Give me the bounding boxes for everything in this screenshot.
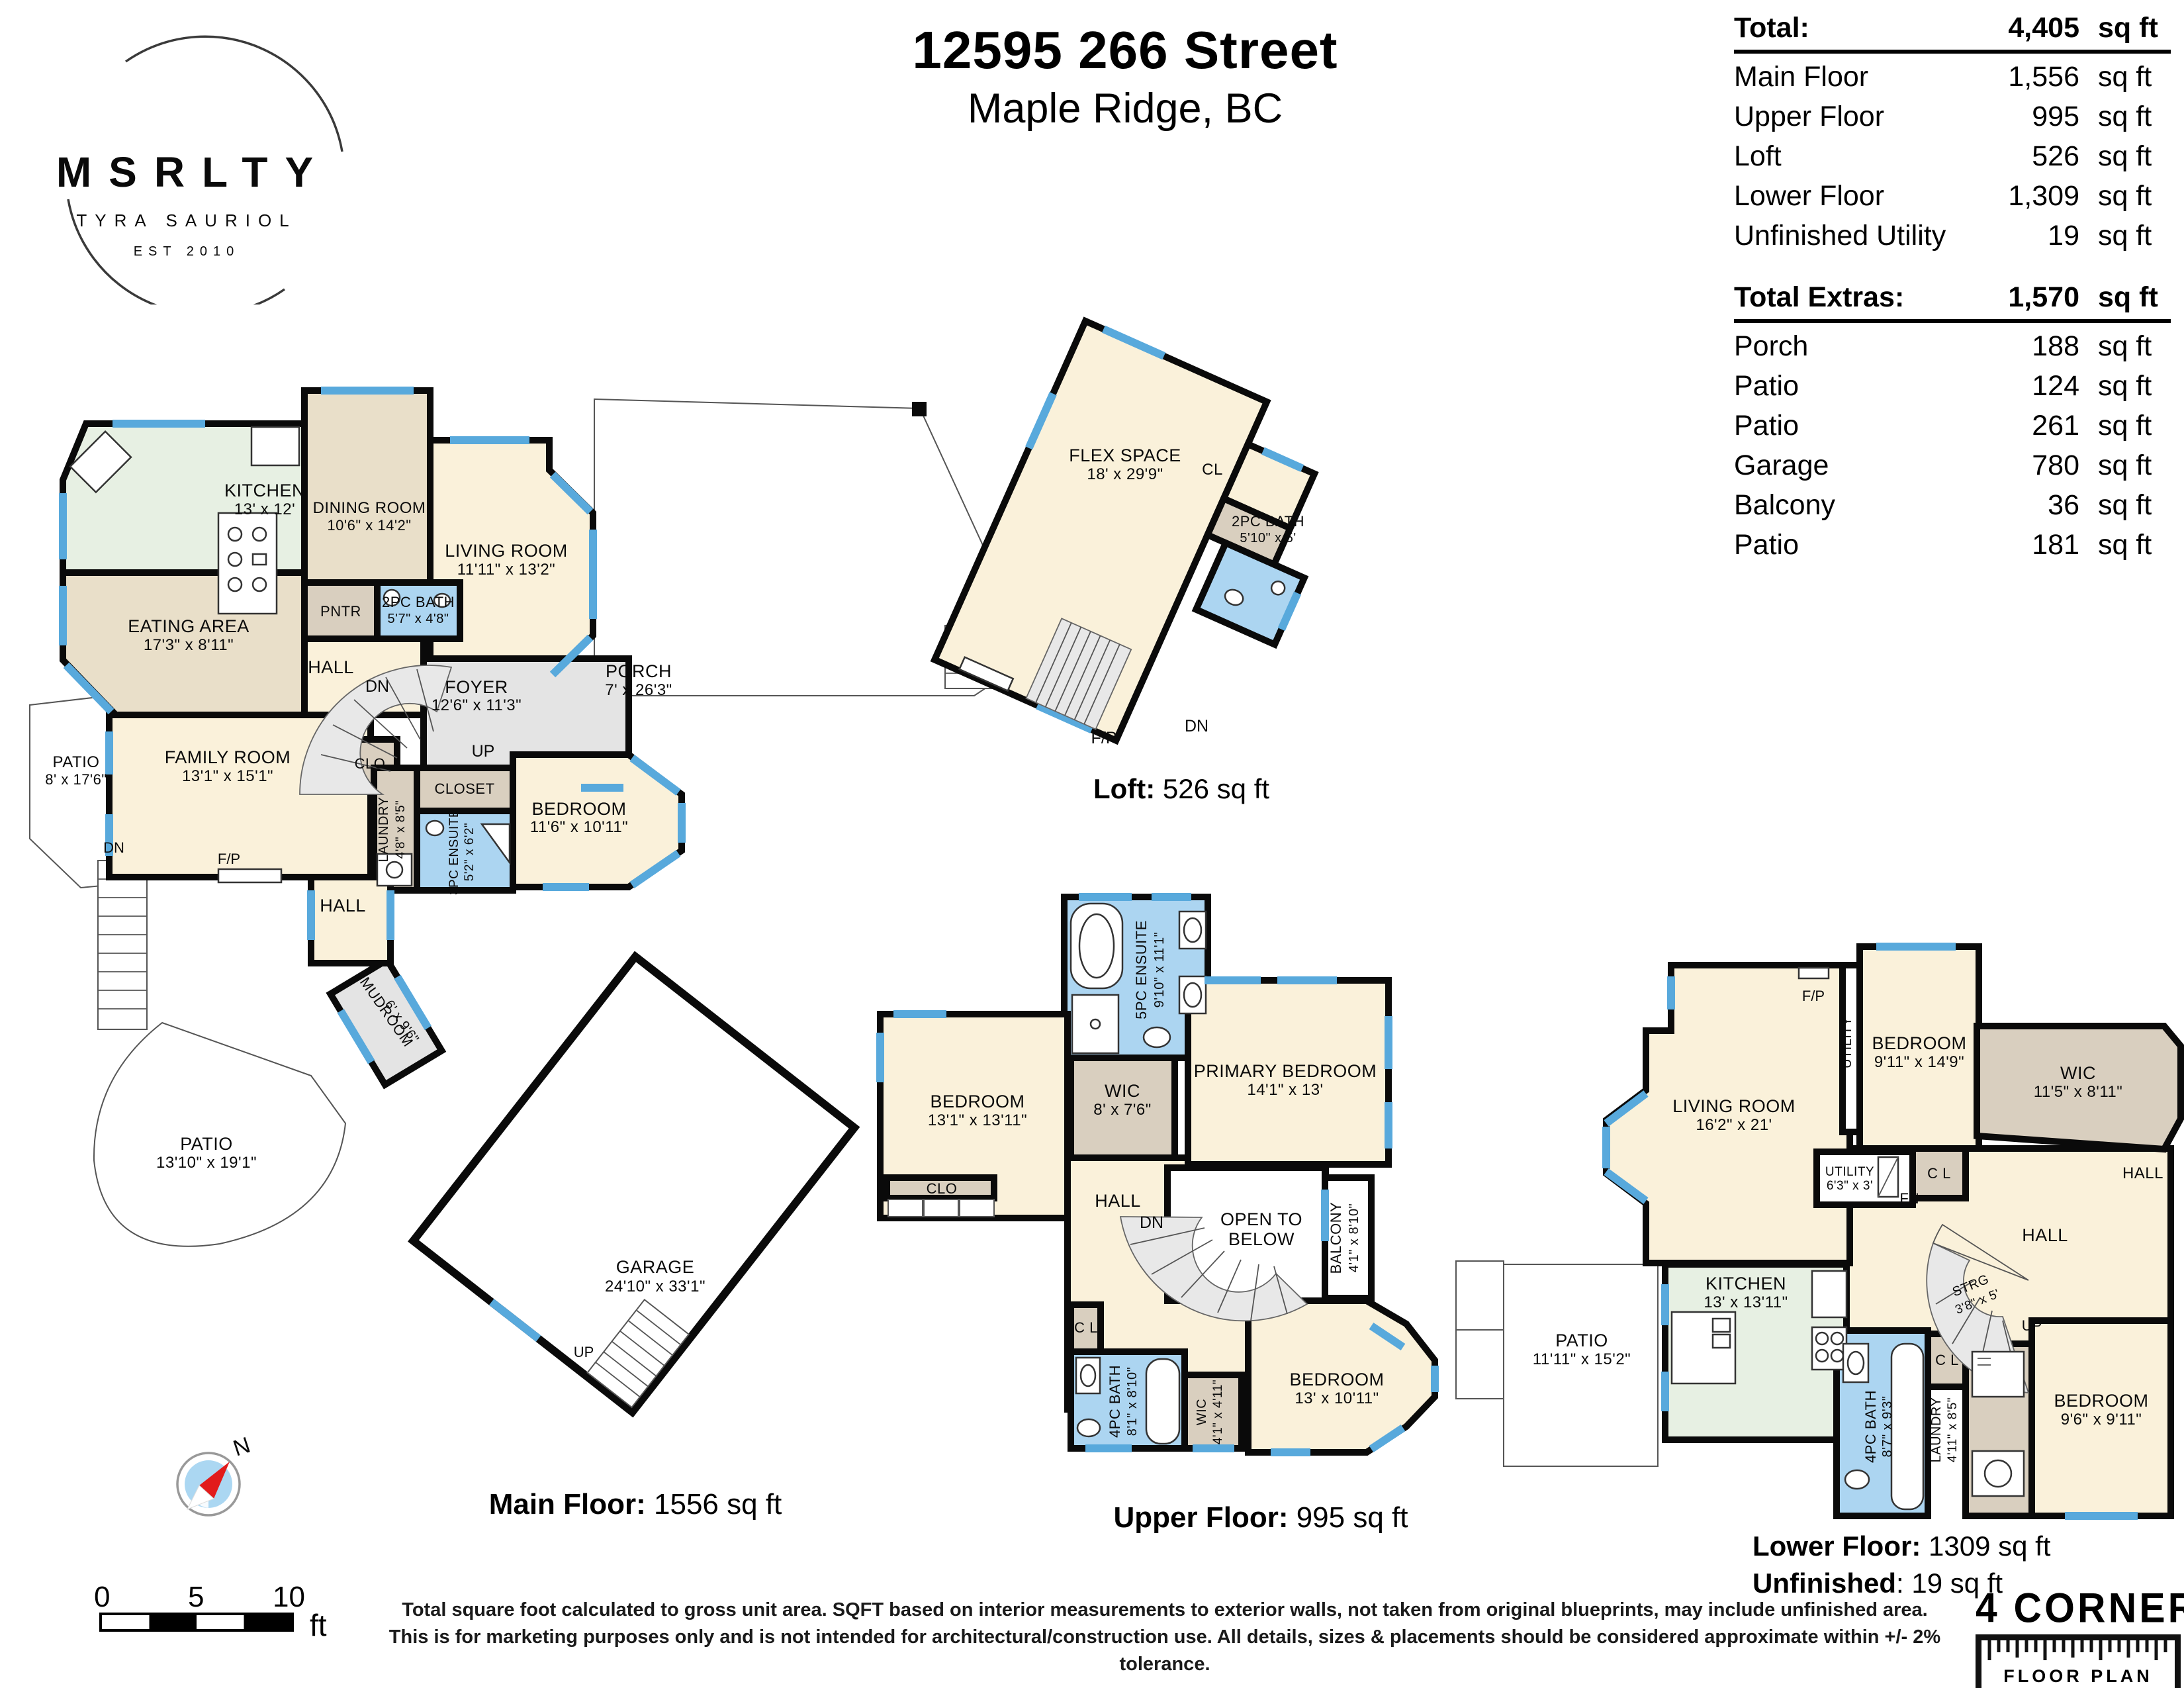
room-dims: 16'2" x 21' — [1696, 1116, 1772, 1134]
room-dims: 13' x 10'11" — [1295, 1389, 1379, 1407]
family-fireplace — [218, 869, 281, 882]
room-label: PATIO — [180, 1134, 233, 1154]
loft-bath-2pc — [1196, 543, 1304, 644]
scale-unit: ft — [310, 1607, 327, 1643]
row-label: Unfinished Utility — [1734, 220, 1980, 252]
room-dims: 6'3" x 3' — [1827, 1179, 1873, 1193]
room-label: BEDROOM — [1289, 1370, 1384, 1389]
logo-est: EST 2010 — [134, 244, 240, 259]
extras-table: Total Extras: 1,570 sq ft Porch188sq ft … — [1734, 281, 2171, 561]
room-label: WIC — [1105, 1081, 1140, 1101]
room-label: UTILITY — [1840, 1017, 1854, 1068]
room-label: LAUNDRY — [377, 797, 391, 863]
room-dims: 8' x 7'6" — [1093, 1101, 1152, 1119]
row-label: Patio — [1734, 410, 1980, 442]
room-label: PNTR — [320, 603, 361, 620]
table-row: Main Floor1,556sq ft — [1734, 61, 2171, 93]
row-value: 124 — [1980, 370, 2079, 402]
table-row: Unfinished Utility19sq ft — [1734, 220, 2171, 252]
city-line: Maple Ridge, BC — [761, 85, 1489, 132]
kitchen-range — [251, 427, 299, 465]
caption-text: 995 sq ft — [1288, 1501, 1408, 1534]
room-dims: 11'11" x 13'2" — [457, 561, 555, 579]
main-floor-caption: Main Floor: 1556 sq ft — [437, 1488, 834, 1521]
living-fireplace — [1799, 968, 1829, 978]
room-dims: 5'10" x 5' — [1240, 531, 1296, 545]
toilet — [1144, 1027, 1170, 1047]
room-dims: 9'11" x 14'9" — [1874, 1053, 1964, 1071]
caption-text: 526 sq ft — [1155, 773, 1269, 804]
room-dims: 13' x 12' — [234, 500, 295, 518]
disclaimer: Total square foot calculated to gross un… — [371, 1597, 1959, 1678]
row-value: 181 — [1980, 529, 2079, 561]
row-unit: sq ft — [2079, 140, 2171, 173]
room-dims: 5'2" x 6'2" — [463, 823, 477, 882]
table-row: Patio181sq ft — [1734, 529, 2171, 561]
room-label: OPEN TO — [1220, 1209, 1302, 1229]
scale-ticks: 0 5 10 — [99, 1581, 318, 1613]
table-row: Lower Floor1,309sq ft — [1734, 180, 2171, 212]
toilet — [1845, 1470, 1869, 1489]
room-label: CL — [1202, 461, 1223, 479]
room-label: C L — [1927, 1165, 1951, 1182]
room-label: HALL — [320, 896, 366, 915]
row-unit: sq ft — [2079, 489, 2171, 522]
row-value: 1,309 — [1980, 180, 2079, 212]
room-dims: 13'10" x 19'1" — [156, 1154, 257, 1172]
room-label: FLEX SPACE — [1069, 445, 1181, 465]
loft-body — [934, 321, 1363, 784]
area-total-unit: sq ft — [2079, 12, 2171, 44]
stairs-up-label: UP — [2022, 1317, 2042, 1334]
room-label: FOYER — [445, 677, 508, 697]
furnace — [1878, 1157, 1898, 1197]
row-unit: sq ft — [2079, 370, 2171, 402]
area-total-value: 4,405 — [1980, 12, 2079, 44]
caption-text: 1309 sq ft — [1921, 1530, 2050, 1562]
room-dims: 8'7" x 9'3" — [1880, 1396, 1895, 1458]
row-value: 188 — [1980, 330, 2079, 363]
room-dims: 11'5" x 8'11" — [2034, 1083, 2123, 1101]
caption-bold: Unfinished — [1752, 1568, 1896, 1599]
tub — [1891, 1344, 1923, 1509]
row-unit: sq ft — [2079, 61, 2171, 93]
extras-total-value: 1,570 — [1980, 281, 2079, 314]
company-subtitle: FLOOR PLAN — [1981, 1666, 2175, 1687]
row-label: Balcony — [1734, 489, 1980, 522]
upper-floor-caption: Upper Floor: 995 sq ft — [1062, 1501, 1459, 1534]
room-dims: 9'6" x 9'11" — [2061, 1411, 2142, 1429]
floorplan-company-logo: 4 CORNERS FLOOR PLAN — [1976, 1586, 2181, 1688]
room-dims: 10'6" x 14'2" — [327, 517, 411, 534]
room-label: PATIO — [53, 753, 100, 771]
stairs-up-label: UP — [472, 742, 495, 761]
table-row: Porch188sq ft — [1734, 330, 2171, 363]
room-label: 2PC BATH — [382, 594, 455, 610]
caption-text: 1556 sq ft — [646, 1488, 782, 1521]
garage — [413, 957, 854, 1412]
room-label: FAMILY ROOM — [165, 747, 291, 767]
table-row: Balcony36sq ft — [1734, 489, 2171, 522]
row-value: 261 — [1980, 410, 2079, 442]
row-unit: sq ft — [2079, 101, 2171, 133]
room-label: 5PC ENSUITE — [1133, 920, 1150, 1019]
room-dims: 12'6" x 11'3" — [432, 696, 522, 714]
row-label: Main Floor — [1734, 61, 1980, 93]
row-label: Loft — [1734, 140, 1980, 173]
tick-0: 0 — [94, 1581, 110, 1614]
room-label: BEDROOM — [531, 799, 626, 819]
room-dims: 4'8" x 8'5" — [394, 800, 408, 859]
caption-bold: Lower Floor: — [1752, 1530, 1921, 1562]
room-dims: 13'1" x 13'11" — [928, 1111, 1027, 1129]
room-label: WIC — [1195, 1399, 1209, 1425]
room-dims: 18' x 29'9" — [1087, 465, 1163, 483]
fireplace-label: F/P — [1091, 729, 1117, 747]
room-label: BELOW — [1228, 1229, 1295, 1249]
room-dims: 14'1" x 13' — [1247, 1081, 1323, 1099]
room-label: HALL — [1095, 1191, 1141, 1211]
room-dims: 9'10" x 11'1" — [1152, 932, 1167, 1008]
room-label: LIVING ROOM — [1672, 1096, 1796, 1116]
tick-5: 5 — [188, 1581, 204, 1614]
room-dims: 13' x 13'11" — [1704, 1293, 1788, 1311]
logo-arc-top — [126, 36, 342, 152]
counter — [1812, 1271, 1846, 1317]
row-label: Lower Floor — [1734, 180, 1980, 212]
patio-upper — [30, 696, 109, 888]
room-label: GARAGE — [616, 1257, 695, 1277]
area-table-header: Total: 4,405 sq ft — [1734, 12, 2171, 54]
page-title: 12595 266 Street Maple Ridge, BC — [761, 20, 1489, 132]
room-label: KITCHEN — [224, 481, 305, 500]
toilet — [1077, 1419, 1100, 1436]
scale-bar: 0 5 10 ft — [99, 1581, 318, 1632]
room-dims: 17'3" x 8'11" — [144, 636, 234, 654]
row-value: 780 — [1980, 449, 2079, 482]
room-dims: 4'1" x 4'11" — [1211, 1380, 1225, 1444]
room-dims: 24'10" x 33'1" — [605, 1278, 705, 1295]
row-label: Upper Floor — [1734, 101, 1980, 133]
caption-bold: Upper Floor: — [1114, 1501, 1289, 1534]
room-label: EATING AREA — [128, 616, 250, 636]
row-unit: sq ft — [2079, 330, 2171, 363]
room-label: HALL — [2022, 1225, 2068, 1245]
room-dims: 7' x 26'3" — [605, 681, 672, 699]
room-dims: 4'11" x 8'5" — [1946, 1397, 1960, 1462]
row-unit: sq ft — [2079, 410, 2171, 442]
table-row: Upper Floor995sq ft — [1734, 101, 2171, 133]
room-label: LIVING ROOM — [445, 541, 568, 561]
row-unit: sq ft — [2079, 449, 2171, 482]
area-total-label: Total: — [1734, 12, 1980, 44]
room-dims: 13'1" x 15'1" — [182, 767, 273, 785]
room-label: HALL — [308, 657, 354, 677]
area-table: Total: 4,405 sq ft Main Floor1,556sq ft … — [1734, 12, 2171, 252]
company-name: 4 CORNERS — [1976, 1583, 2184, 1632]
room-label: DINING ROOM — [313, 499, 426, 517]
extras-total-unit: sq ft — [2079, 281, 2171, 314]
lower-floor-plan: LIVING ROOM 16'2" x 21' F/P UTILITY BEDR… — [1449, 914, 2184, 1549]
caption-bold: Loft: — [1093, 773, 1155, 804]
loft-caption: Loft: 526 sq ft — [983, 773, 1380, 805]
dining-room — [304, 391, 430, 583]
garage-up-label: UP — [574, 1344, 594, 1360]
tub — [1146, 1359, 1179, 1444]
room-label: CLO — [355, 755, 386, 772]
room-label: C L — [1935, 1352, 1959, 1368]
row-value: 1,556 — [1980, 61, 2079, 93]
room-label: CLOSET — [434, 780, 494, 797]
table-row: Loft526sq ft — [1734, 140, 2171, 173]
row-unit: sq ft — [2079, 220, 2171, 252]
room-label: PATIO — [1555, 1331, 1608, 1350]
row-label: Patio — [1734, 529, 1980, 561]
room-label: WIC — [2060, 1063, 2096, 1083]
row-label: Garage — [1734, 449, 1980, 482]
room-dims: 11'6" x 10'11" — [530, 818, 628, 836]
row-unit: sq ft — [2079, 529, 2171, 561]
row-value: 995 — [1980, 101, 2079, 133]
scale-bar-graphic — [99, 1613, 294, 1632]
furnace-label: FN — [1899, 1190, 1919, 1207]
row-value: 36 — [1980, 489, 2079, 522]
room-dims: 8'1" x 8'10" — [1125, 1367, 1140, 1436]
room-dims: 11'11" x 15'2" — [1533, 1350, 1631, 1368]
room-label: BEDROOM — [930, 1092, 1024, 1111]
row-label: Patio — [1734, 370, 1980, 402]
table-row: Patio261sq ft — [1734, 410, 2171, 442]
disclaimer-line1: Total square foot calculated to gross un… — [371, 1597, 1959, 1624]
room-label: BALCONY — [1328, 1202, 1344, 1274]
patio-stairs — [98, 861, 147, 1029]
tick-10: 10 — [273, 1581, 305, 1614]
room-label: BEDROOM — [1872, 1033, 1966, 1053]
room-label: UTILITY — [1825, 1165, 1874, 1179]
disclaimer-line2: This is for marketing purposes only and … — [371, 1624, 1959, 1678]
stairs-dn-label: DN — [1140, 1213, 1163, 1232]
room-dims: 8' x 17'6" — [45, 771, 107, 788]
room-label: 4PC BATH — [1862, 1390, 1879, 1463]
room-label: 2PC BATH — [1232, 513, 1304, 530]
logo-name: TYRA SAURIOL — [76, 211, 296, 230]
table-row: Garage780sq ft — [1734, 449, 2171, 482]
upper-floor-plan: 5PC ENSUITE 9'10" x 11'1" BEDROOM 13'1" … — [874, 884, 1542, 1552]
hall-lower — [311, 877, 390, 963]
room-label: BEDROOM — [2054, 1391, 2148, 1411]
caption-line: Lower Floor: 1309 sq ft — [1752, 1528, 2176, 1565]
room-label: HALL — [2122, 1164, 2163, 1182]
ruler-graphic: FLOOR PLAN — [1976, 1634, 2181, 1688]
room-label: KITCHEN — [1706, 1274, 1786, 1293]
room-label: C L — [1074, 1319, 1098, 1336]
floor-plan-sheet: MSRLTY TYRA SAURIOL EST 2010 12595 266 S… — [0, 0, 2184, 1688]
brokerage-logo: MSRLTY TYRA SAURIOL EST 2010 — [13, 13, 397, 305]
table-row: Patio124sq ft — [1734, 370, 2171, 402]
room-label: CLO — [927, 1180, 958, 1197]
room-label: PORCH — [606, 661, 672, 681]
row-value: 19 — [1980, 220, 2079, 252]
kitchen-island — [218, 513, 277, 614]
extras-total-label: Total Extras: — [1734, 281, 1980, 314]
room-label: 3PC ENSUITE — [447, 809, 461, 895]
caption-bold: Main Floor: — [489, 1488, 646, 1521]
room-label: 4PC BATH — [1107, 1365, 1123, 1438]
ensuite-toilet — [426, 821, 443, 835]
room-dims: 4'1" x 8'10" — [1347, 1203, 1361, 1273]
room-dims: 5'7" x 4'8" — [388, 612, 449, 626]
room-label: PRIMARY BEDROOM — [1194, 1061, 1377, 1081]
patio-dn-label: DN — [103, 839, 124, 856]
fireplace-label: F/P — [1802, 988, 1825, 1004]
loft-plan: FLEX SPACE 18' x 29'9" CL 2PC BATH 5'10"… — [927, 301, 1430, 831]
clo-drawers — [888, 1199, 994, 1217]
extras-table-header: Total Extras: 1,570 sq ft — [1734, 281, 2171, 323]
compass-rose: N — [156, 1430, 268, 1536]
stairs-dn-label: DN — [1185, 717, 1208, 735]
logo-brand: MSRLTY — [56, 148, 330, 196]
room-label: LAUNDRY — [1929, 1397, 1944, 1463]
row-value: 526 — [1980, 140, 2079, 173]
row-unit: sq ft — [2079, 180, 2171, 212]
address-line: 12595 266 Street — [761, 20, 1489, 81]
north-label: N — [230, 1432, 253, 1462]
stairs-dn-label: DN — [365, 677, 389, 696]
fireplace-label: F/P — [218, 851, 240, 867]
row-label: Porch — [1734, 330, 1980, 363]
